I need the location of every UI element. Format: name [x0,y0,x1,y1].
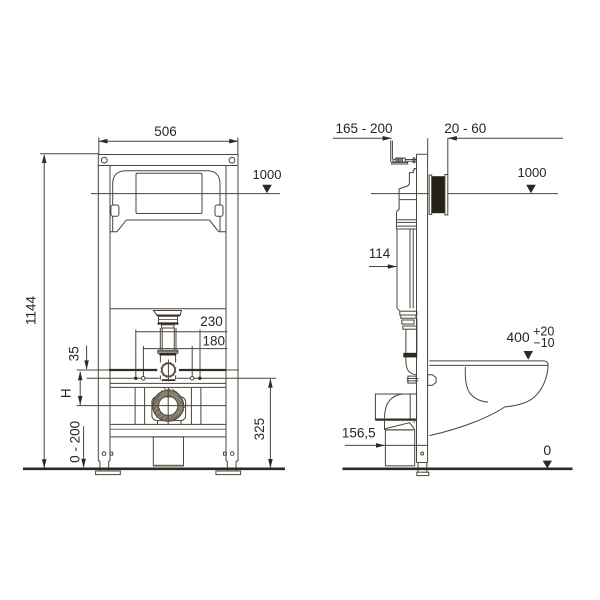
svg-text:−10: −10 [533,336,554,350]
svg-text:165 - 200: 165 - 200 [335,121,392,136]
svg-text:156,5: 156,5 [342,426,376,441]
svg-text:1144: 1144 [23,295,38,325]
svg-text:180: 180 [203,334,226,349]
svg-text:400: 400 [506,329,530,345]
svg-text:0 - 200: 0 - 200 [68,421,83,463]
svg-text:20 - 60: 20 - 60 [444,121,486,136]
svg-text:325: 325 [252,418,267,441]
svg-text:114: 114 [369,246,391,261]
svg-text:1000: 1000 [253,167,282,182]
svg-text:1000: 1000 [518,165,547,180]
svg-text:506: 506 [154,124,177,139]
svg-text:35: 35 [67,346,82,361]
svg-text:230: 230 [200,314,223,329]
svg-text:0: 0 [543,442,551,458]
svg-text:H: H [58,388,73,398]
